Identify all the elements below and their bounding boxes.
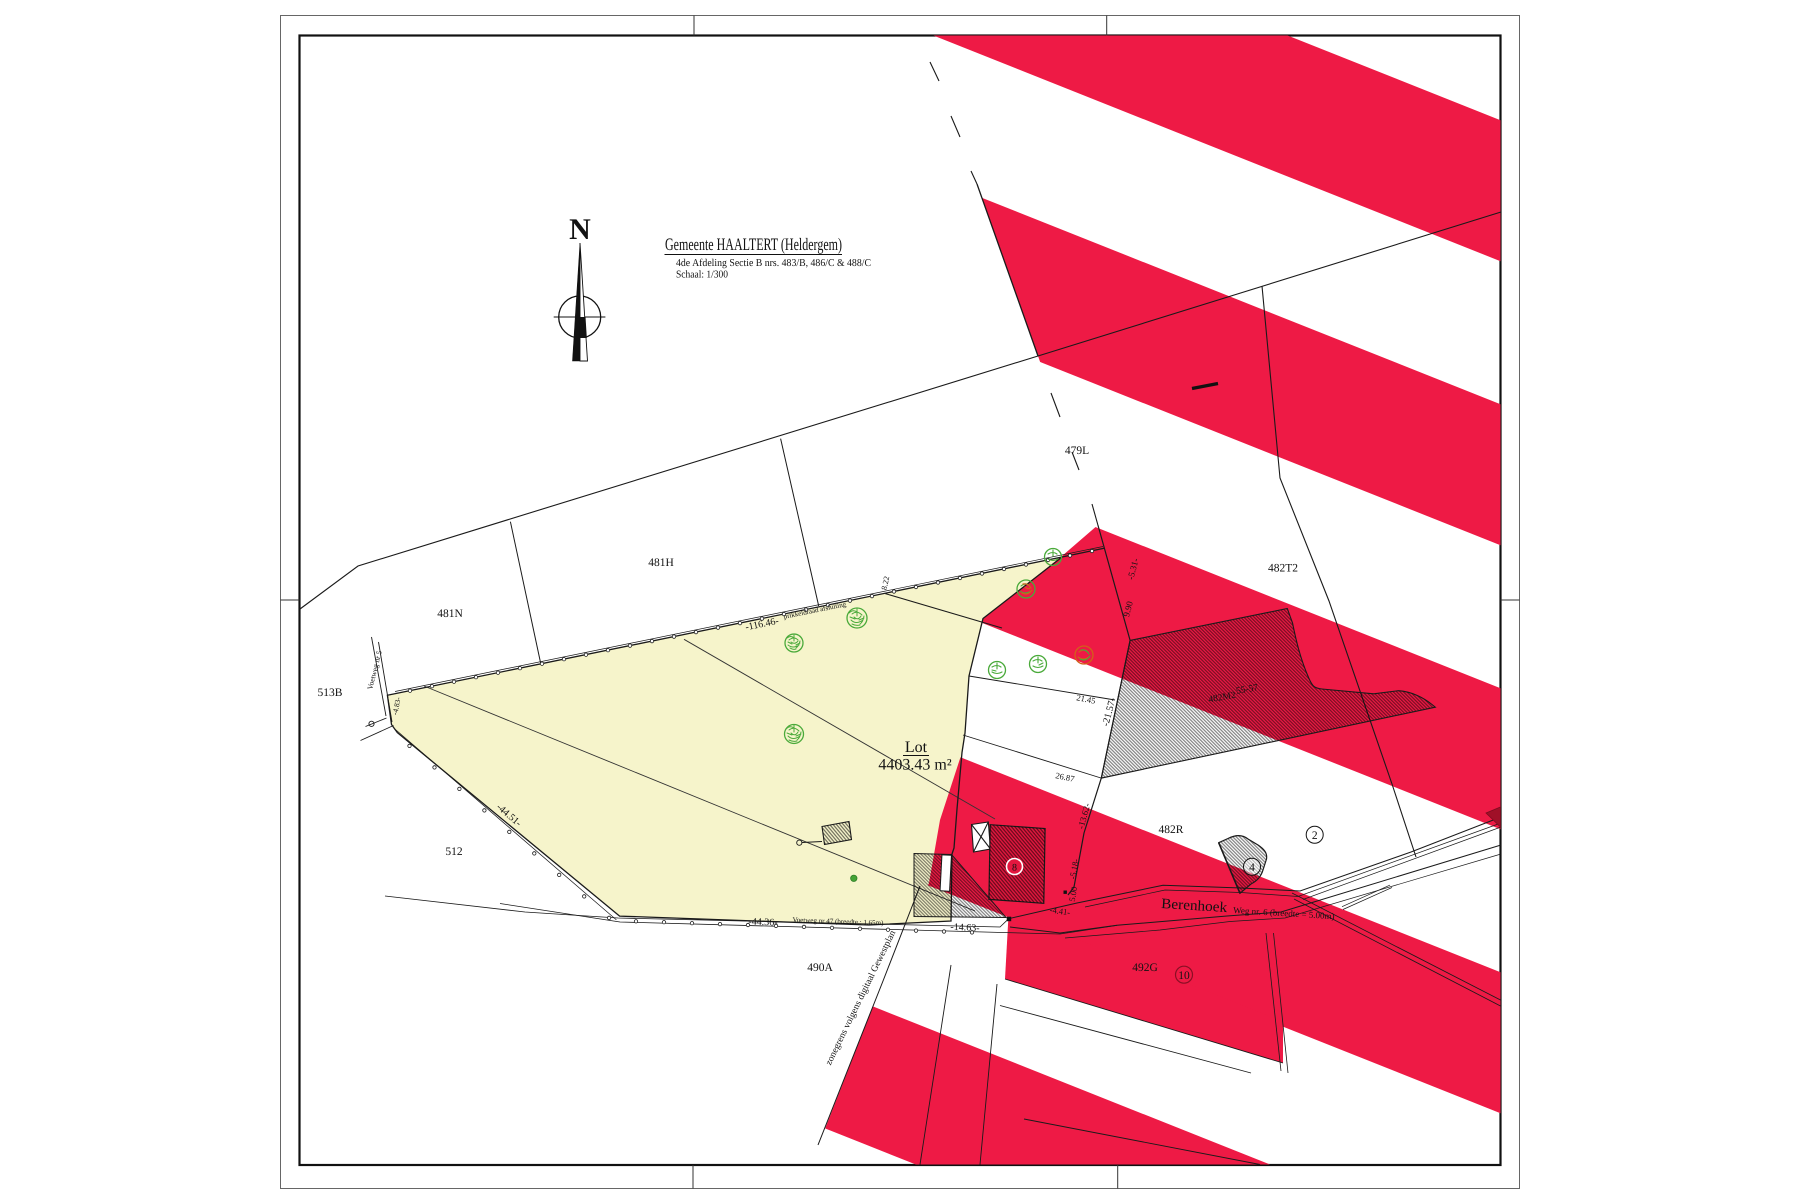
svg-text:-14.63-: -14.63- [950, 922, 980, 935]
svg-text:Lot: Lot [905, 739, 928, 756]
svg-text:481H: 481H [648, 557, 674, 569]
svg-text:482R: 482R [1159, 824, 1184, 836]
svg-text:4de Afdeling Sectie B nrs. 4: 4de Afdeling Sectie B nrs. 483/B, 486/C … [676, 258, 871, 269]
svg-text:512: 512 [445, 846, 463, 858]
svg-text:492G: 492G [1132, 962, 1158, 974]
svg-text:10: 10 [1178, 970, 1190, 982]
svg-text:N: N [569, 213, 591, 246]
svg-text:-44.36-: -44.36- [748, 916, 778, 928]
svg-text:513B: 513B [318, 687, 343, 699]
svg-text:2: 2 [1312, 830, 1318, 842]
svg-text:4403.43 m²: 4403.43 m² [878, 757, 951, 774]
svg-text:Gemeente HAALTERT (Heldergem): Gemeente HAALTERT (Heldergem) [665, 234, 842, 254]
svg-text:8: 8 [1012, 863, 1017, 874]
svg-text:490A: 490A [807, 962, 833, 974]
svg-text:481N: 481N [437, 608, 463, 620]
svg-text:4: 4 [1249, 862, 1255, 874]
svg-text:Schaal: 1/300: Schaal: 1/300 [676, 270, 728, 281]
svg-text:479L: 479L [1065, 445, 1089, 457]
svg-text:482T2: 482T2 [1268, 563, 1298, 575]
